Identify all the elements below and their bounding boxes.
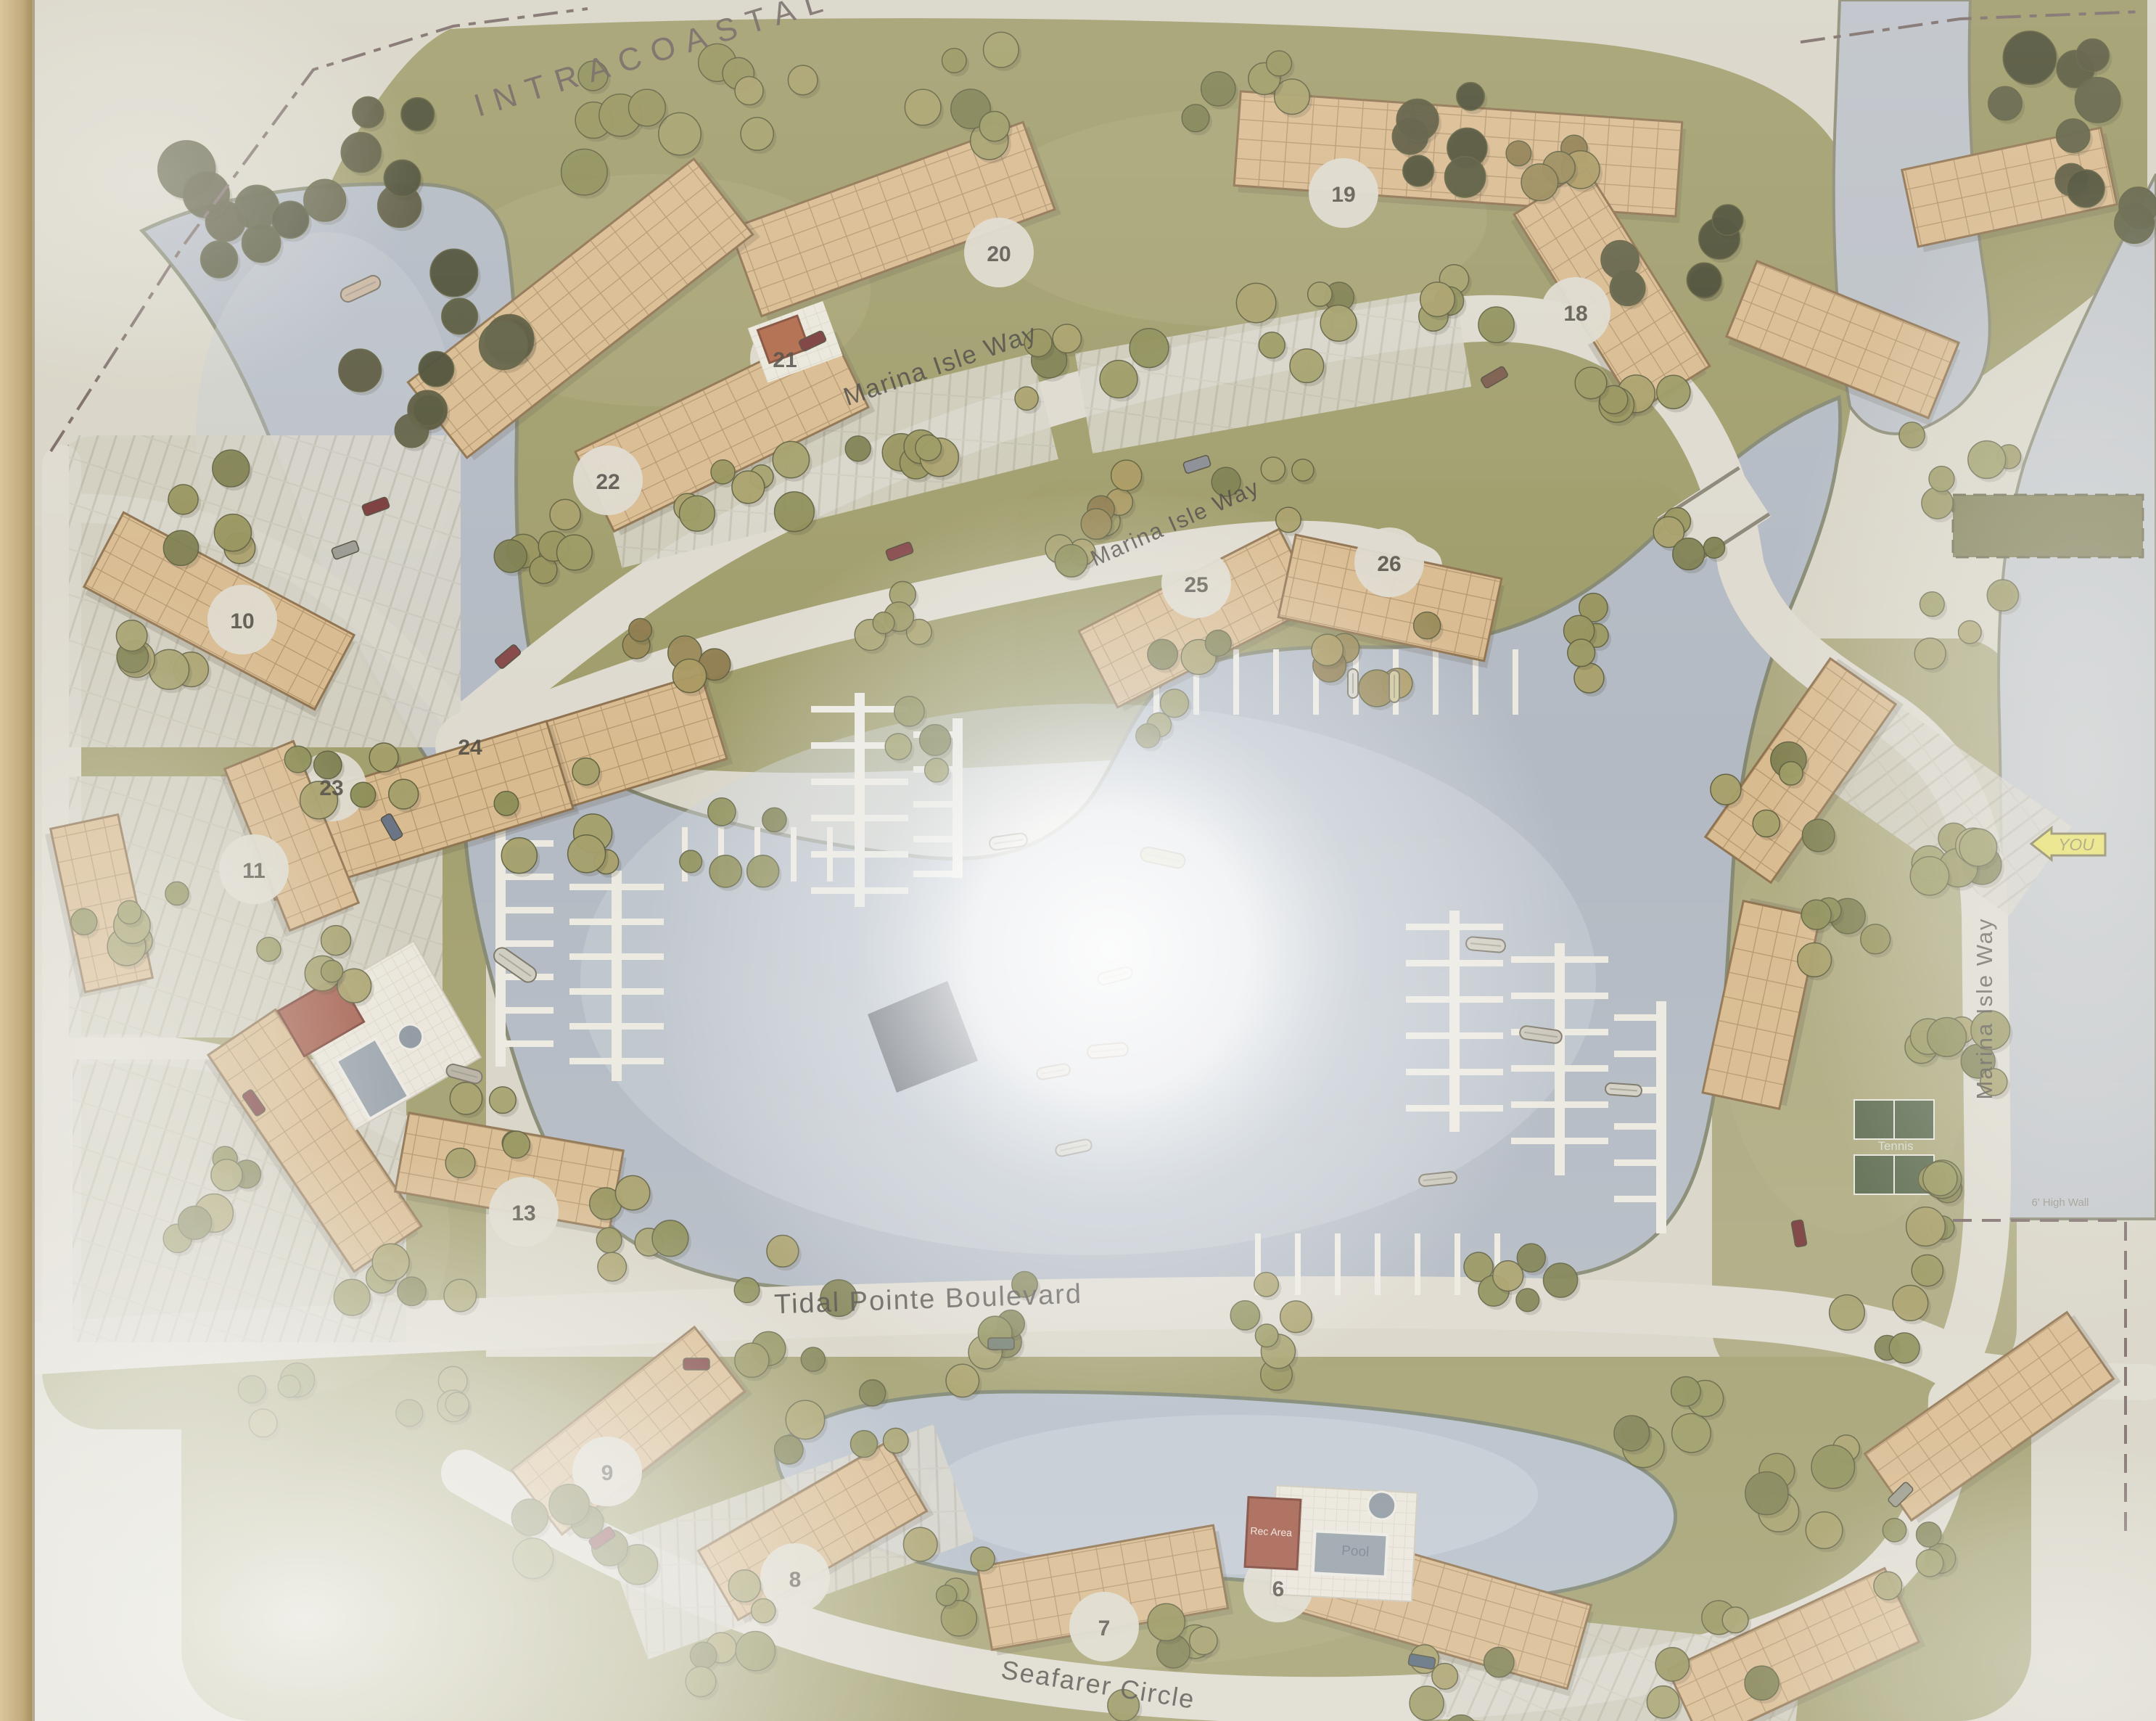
photo-glare xyxy=(0,0,2156,1721)
picture-frame-edge xyxy=(0,0,33,1721)
site-plan-map: 1920211822252624231011139876Marina Isle … xyxy=(0,0,2156,1721)
photo-of-site-plan: 1920211822252624231011139876Marina Isle … xyxy=(0,0,2156,1721)
